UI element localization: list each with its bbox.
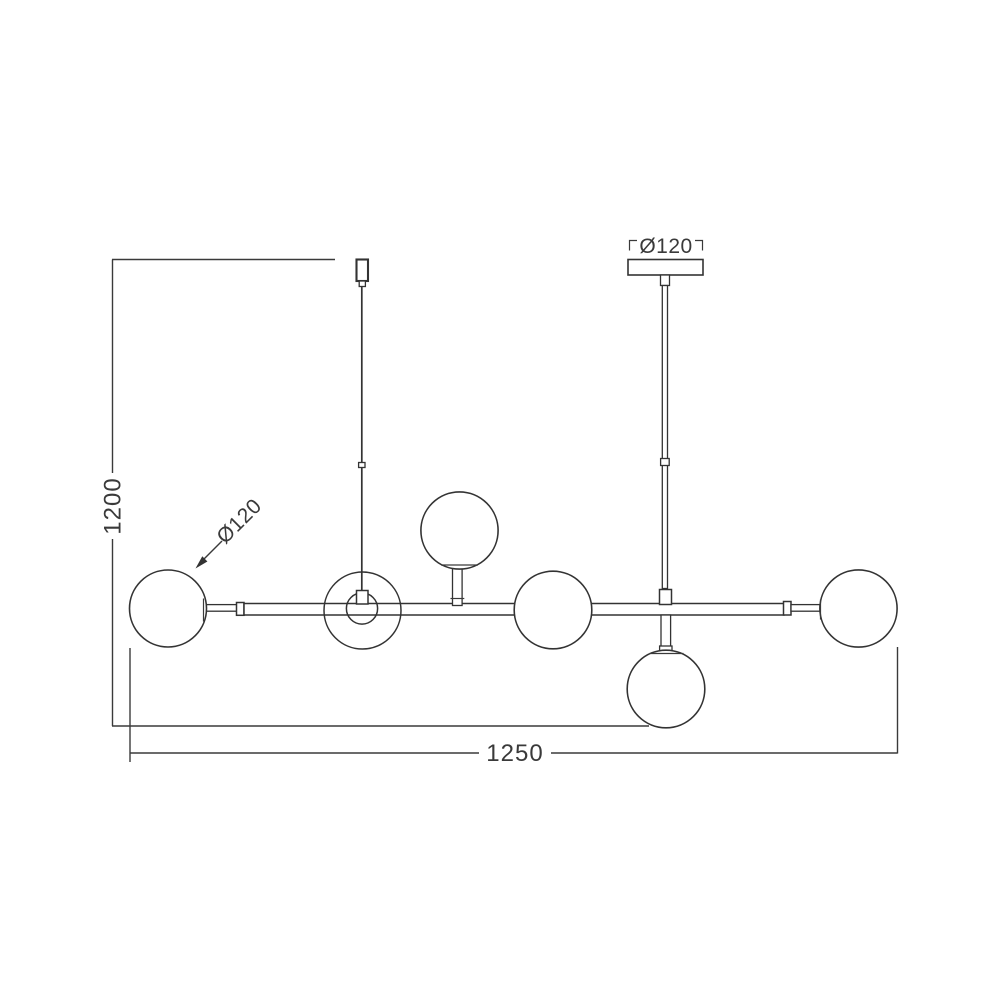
cable-ceiling-grip [357, 260, 369, 282]
height-dim-label: 1200 [100, 477, 127, 534]
canopy-diameter-annotation: Ø120 [630, 235, 703, 258]
right-suspension-rod [628, 260, 703, 589]
upper-globe-stem [453, 566, 463, 606]
canopy-diameter-label: Ø120 [639, 235, 692, 258]
bar-left-neck [205, 605, 238, 612]
lower-globe-assembly [627, 615, 705, 728]
canopy-dim-right-bracket [695, 241, 703, 251]
lower-globe-stem [661, 615, 671, 648]
cable-bar-grip-block [357, 591, 369, 605]
cable-grip-nipple [359, 281, 365, 287]
globe-left [130, 570, 207, 647]
bar-right-sleeve-connector [784, 602, 792, 616]
suspension-rod-tube [662, 286, 667, 589]
globe-middle [514, 571, 592, 649]
rod-bar-connector-block [660, 590, 672, 605]
globe-diameter-label: Ø120 [212, 494, 266, 548]
cable-joint-connector [359, 463, 365, 468]
bar-right-neck [791, 605, 820, 612]
width-dim-label: 1250 [486, 740, 543, 767]
height-dimension: 1200 [100, 260, 650, 727]
canopy-dim-left-bracket [630, 241, 638, 251]
canopy-stem-connector [661, 275, 670, 286]
width-dimension: 1250 [130, 647, 898, 767]
globe-diameter-annotation: Ø120 [196, 494, 267, 568]
bar-left-sleeve-connector [237, 603, 245, 616]
pendant-lamp-drawing: 1200 1250 Ø120 Ø120 [0, 0, 1000, 1000]
globe-right [820, 570, 897, 647]
left-suspension-cable [357, 260, 369, 591]
upper-globe-assembly [421, 492, 498, 606]
rod-joint-connector [661, 459, 670, 466]
globe-lower [627, 650, 705, 728]
ceiling-canopy-plate [628, 260, 703, 276]
horizontal-bar [205, 602, 821, 616]
globe-upper [421, 492, 498, 569]
technical-drawing-page: 1200 1250 Ø120 Ø120 [0, 0, 1000, 1000]
